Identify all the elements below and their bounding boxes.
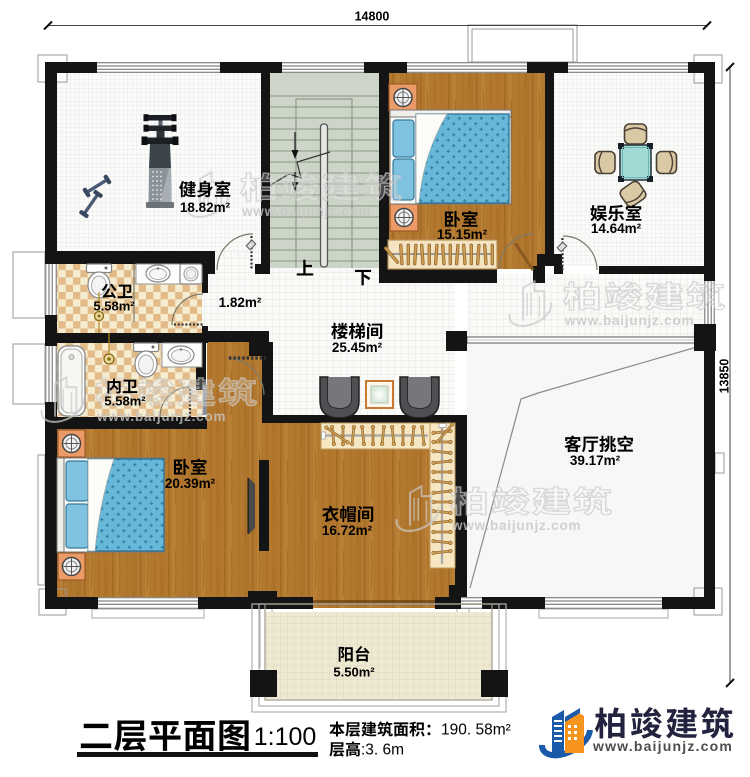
svg-text:www.baijunjz.com: www.baijunjz.com [451, 518, 581, 533]
svg-text:www.baijunjz.com: www.baijunjz.com [96, 409, 226, 424]
svg-text:39.17m²: 39.17m² [570, 453, 621, 468]
svg-text:1.82m²: 1.82m² [219, 295, 262, 310]
svg-text:190. 58m²: 190. 58m² [441, 722, 511, 739]
svg-text:16.72m²: 16.72m² [322, 523, 373, 538]
svg-text:14800: 14800 [355, 10, 390, 24]
svg-text::3. 6m: :3. 6m [361, 742, 404, 759]
svg-text:20.39m²: 20.39m² [165, 476, 216, 491]
svg-text:13850: 13850 [718, 359, 732, 394]
svg-text:15.15m²: 15.15m² [437, 227, 488, 242]
svg-text:1:100: 1:100 [254, 723, 317, 751]
svg-text:www.baijunjz.com: www.baijunjz.com [564, 313, 694, 328]
svg-text:www.baijunjz.com: www.baijunjz.com [241, 204, 371, 219]
svg-text:www.baijunjz.com: www.baijunjz.com [592, 738, 733, 754]
svg-text:25.45m²: 25.45m² [332, 340, 383, 355]
svg-text:5.58m²: 5.58m² [104, 394, 146, 409]
svg-text:5.58m²: 5.58m² [93, 299, 135, 314]
svg-text:14.64m²: 14.64m² [591, 221, 642, 236]
svg-text:5.50m²: 5.50m² [333, 665, 375, 680]
svg-text:18.82m²: 18.82m² [180, 200, 231, 215]
